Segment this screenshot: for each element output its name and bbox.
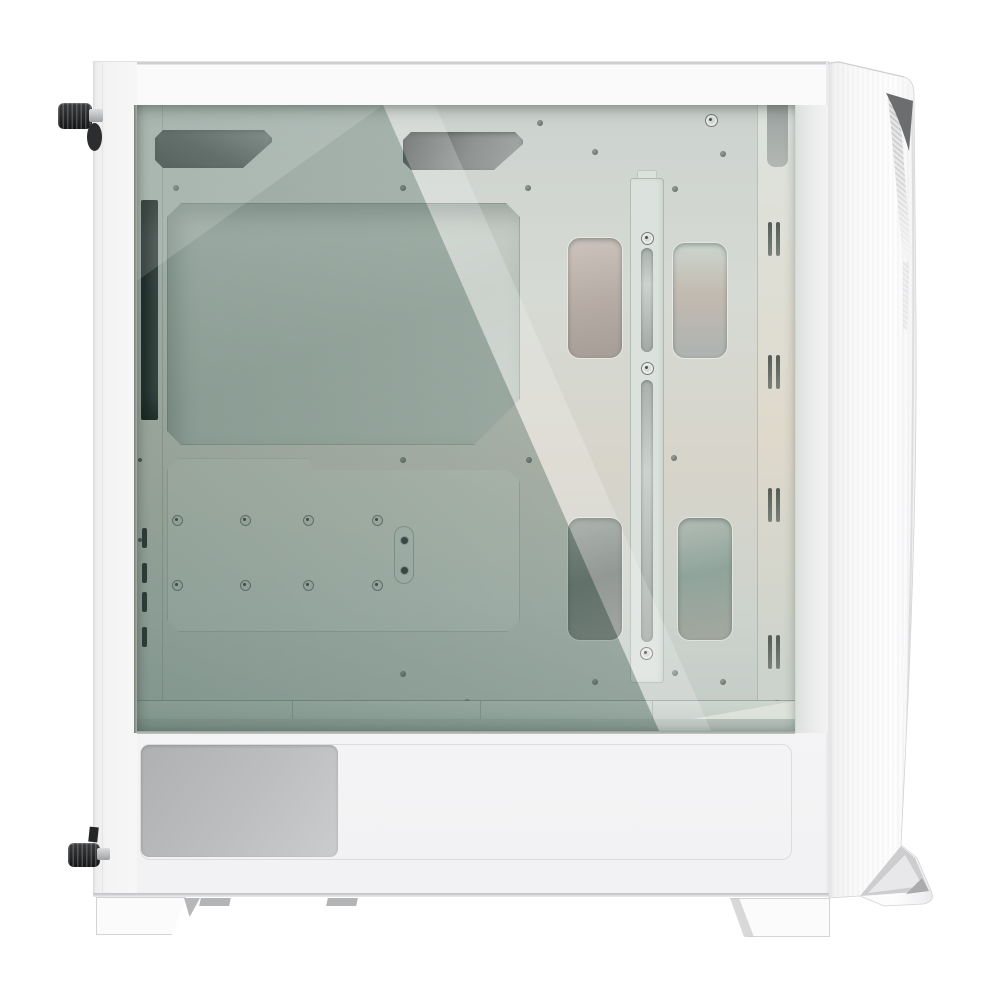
glass-bottom-edge [137, 731, 795, 734]
thumbscrew-shaft [89, 109, 103, 122]
cable-tie-bracket [394, 526, 414, 584]
bar-screw [641, 232, 654, 245]
glass-edge [134, 105, 137, 733]
cpu-cooler-cutout [167, 203, 520, 445]
cable-grommet-cutout [568, 238, 622, 358]
tray-fold-line [162, 105, 163, 700]
thumbscrew-bottom [68, 843, 100, 867]
bar-screw [640, 647, 653, 660]
standoff-screw [172, 580, 183, 591]
screw-hole [720, 679, 726, 685]
screw-hole [400, 185, 406, 191]
panel-groove [102, 64, 103, 892]
left-bezel [93, 62, 137, 895]
psu-vent-grille [141, 745, 338, 857]
cable-bar-slot [641, 380, 653, 642]
vent-slits [768, 635, 781, 669]
case-foot-left [96, 897, 186, 935]
vent-slits [768, 355, 781, 389]
thumbscrew-catch [87, 123, 102, 151]
standoff-screw [303, 515, 314, 526]
drive-mount-plate [167, 458, 520, 632]
rear-bracket-strip [141, 200, 158, 420]
screw-hole [400, 457, 406, 463]
rivet [138, 538, 142, 542]
standoff-screw [372, 515, 383, 526]
case-top-edge [93, 61, 829, 65]
vent-slits [768, 222, 781, 256]
cable-grommet-cutout [678, 518, 732, 640]
screw-hole [672, 186, 678, 192]
screw-hole [720, 151, 726, 157]
chassis-seam [757, 105, 758, 700]
screw-hole [526, 457, 532, 463]
vent-slits [768, 488, 781, 522]
front-panel [825, 58, 940, 910]
top-cable-cutout-middle [403, 132, 523, 170]
screw-hole [173, 185, 179, 191]
thumbscrew-shaft [97, 848, 110, 860]
top-cable-cutout-front [767, 105, 788, 167]
thumbscrew-top [58, 103, 92, 129]
screw-hole [400, 671, 406, 677]
foot-pad [199, 898, 231, 906]
standoff-screw [172, 515, 183, 526]
rear-vent-slit [142, 528, 147, 548]
standoff-screw [240, 515, 251, 526]
screw-hole [671, 455, 677, 461]
cable-grommet-cutout [568, 518, 622, 640]
rivet [138, 458, 142, 462]
front-chassis-column [757, 105, 795, 700]
bar-screw [641, 362, 654, 375]
cable-bar-slot [641, 248, 653, 352]
psu-shroud-shelf [137, 701, 795, 719]
standoff-screw [303, 580, 314, 591]
thumbscrew-catch [88, 827, 99, 843]
standoff-screw [240, 580, 251, 591]
screw-hole [592, 149, 598, 155]
cable-grommet-cutout [673, 243, 727, 358]
shelf-joint [652, 701, 653, 719]
foot-shadow [184, 898, 200, 917]
shelf-joint [292, 701, 293, 719]
screw-hole [525, 185, 531, 191]
rear-vent-slit [142, 592, 147, 612]
rear-vent-slit [142, 627, 147, 647]
shelf-joint [480, 701, 481, 719]
standoff-screw [372, 580, 383, 591]
screw-hole [537, 120, 543, 126]
screw-hole [672, 670, 678, 676]
shelf-seam [137, 700, 795, 701]
case-bottom-edge [93, 893, 829, 897]
front-panel-body [829, 62, 932, 906]
bracket-screw [400, 566, 409, 575]
screw-hole [592, 679, 598, 685]
bracket-screw [400, 536, 409, 545]
panel-outer-edge [93, 62, 96, 895]
rear-vent-slit [142, 563, 147, 583]
top-cable-cutout-left [155, 130, 272, 168]
tempered-glass-side-panel [137, 105, 795, 733]
tray-screw [705, 114, 718, 127]
foot-pad [326, 898, 358, 906]
product-photo [0, 0, 1000, 1000]
